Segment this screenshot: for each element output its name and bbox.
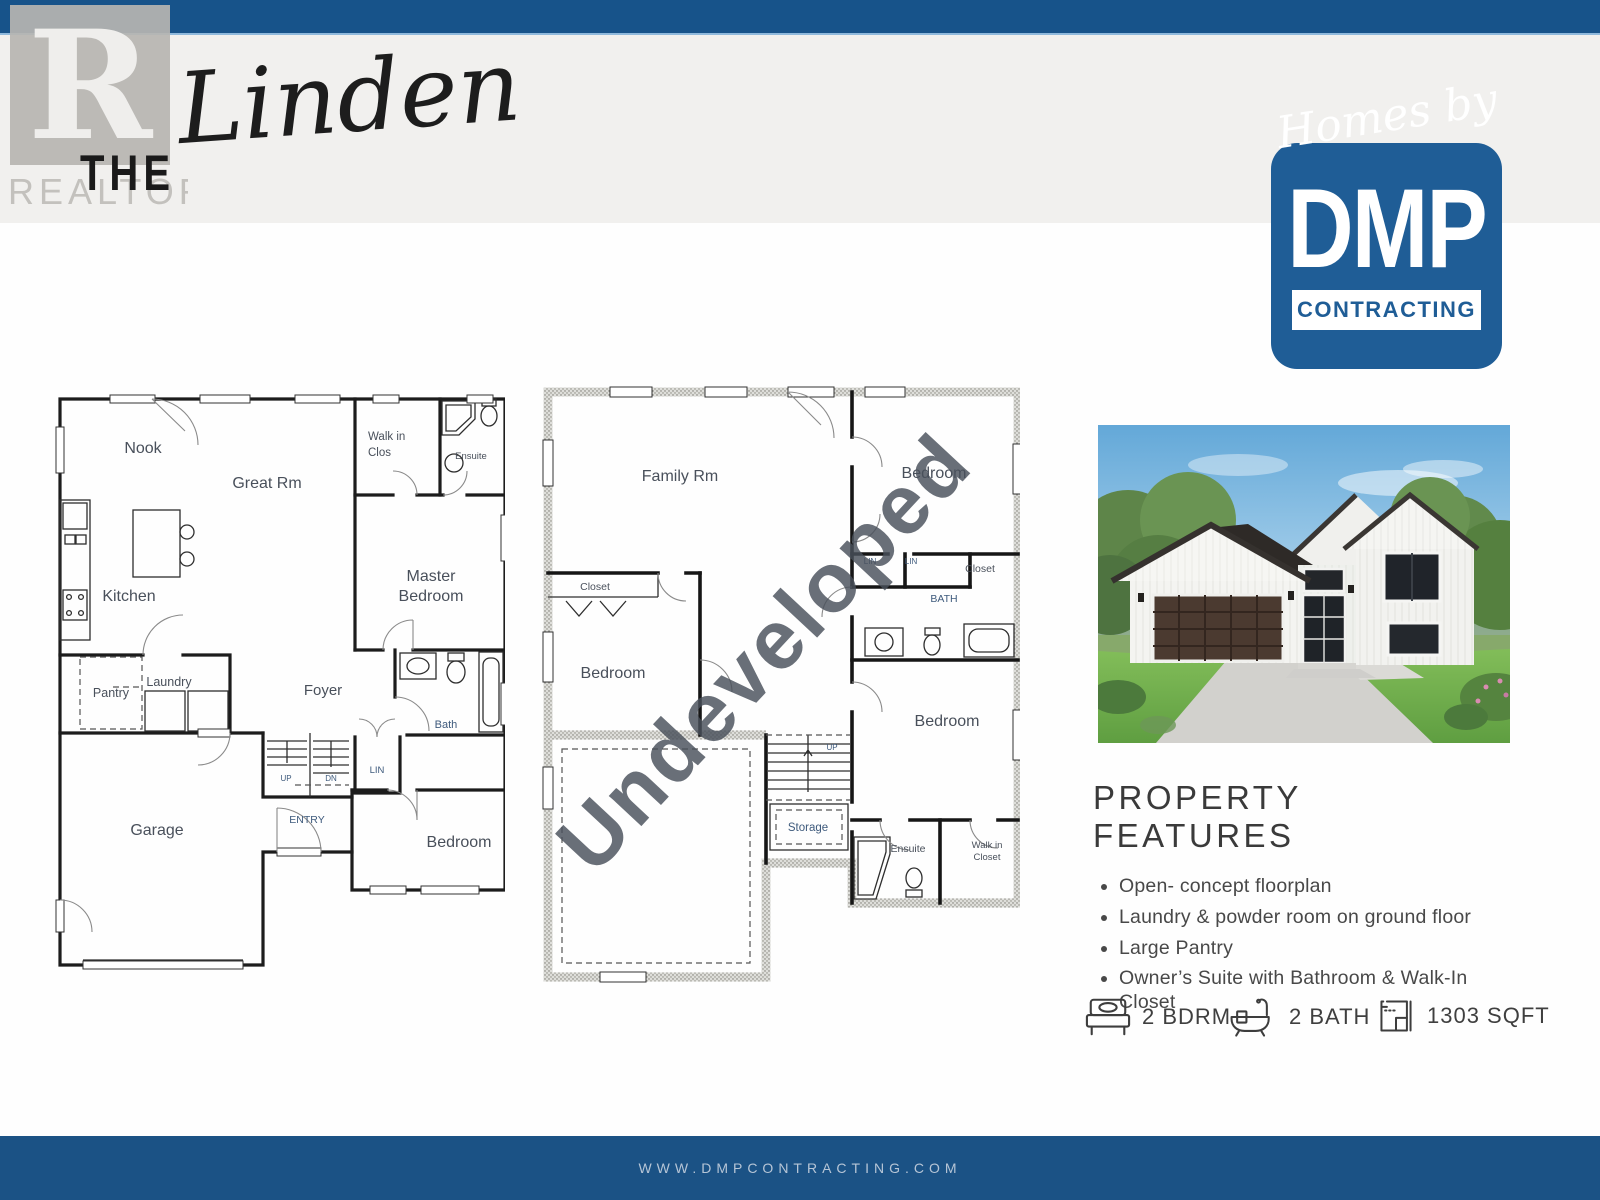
room-label: Walk in: [972, 840, 1003, 851]
stat-bedrooms-label: 2 BDRM: [1142, 1004, 1231, 1030]
features-title: PROPERTY FEATURES: [1093, 779, 1489, 855]
room-label: Great Rm: [232, 475, 301, 492]
floorplan-icon: [1376, 995, 1416, 1037]
room-label: Pantry: [93, 686, 130, 700]
stat-sqft-label: 1303 SQFT: [1427, 1003, 1550, 1029]
room-label: Garage: [130, 822, 183, 839]
room-label: Closet: [580, 581, 610, 593]
feature-item: Large Pantry: [1119, 937, 1489, 961]
features-list: Open- concept floorplan Laundry & powder…: [1093, 875, 1489, 1015]
footer-bar: WWW.DMPCONTRACTING.COM: [0, 1136, 1600, 1200]
room-label: Walk in: [368, 431, 405, 443]
room-label: Storage: [788, 822, 828, 834]
property-features-section: PROPERTY FEATURES Open- concept floorpla…: [1093, 779, 1489, 1022]
website-url: WWW.DMPCONTRACTING.COM: [638, 1160, 961, 1176]
room-label: BATH: [930, 593, 957, 605]
room-label: Nook: [124, 440, 162, 457]
bath-icon: [1226, 995, 1278, 1039]
room-label: Closet: [974, 852, 1001, 863]
room-label: Ensuite: [455, 451, 487, 462]
dmp-wordmark: DMP: [1271, 173, 1502, 285]
top-blue-strip: [0, 0, 1600, 35]
stat-bathrooms: 2 BATH: [1226, 995, 1370, 1039]
room-label: UP: [280, 774, 291, 783]
room-label: Bedroom: [581, 665, 646, 682]
contracting-banner: CONTRACTING: [1292, 290, 1481, 330]
stat-bathrooms-label: 2 BATH: [1289, 1004, 1370, 1030]
house-rendering-image: [1098, 425, 1510, 743]
room-label: LIN: [370, 765, 385, 776]
stat-sqft: 1303 SQFT: [1376, 995, 1550, 1037]
feature-item: Open- concept floorplan: [1119, 875, 1489, 899]
room-label: Clos: [368, 447, 391, 459]
room-label: Ensuite: [890, 843, 925, 855]
room-label: Closet: [965, 563, 995, 575]
room-label: ENTRY: [289, 814, 324, 826]
basement-floorplan: Family Rm Bedroom Closet LIN LIN Closet …: [540, 382, 1020, 997]
room-label: Laundry: [146, 675, 192, 689]
plan-title-name: Linden: [174, 28, 525, 169]
flyer-page: R REALTOR® THE Linden Homes by DMP CONTR…: [0, 0, 1600, 1200]
room-label: Foyer: [304, 682, 342, 699]
room-label: Bedroom: [399, 588, 464, 605]
bed-icon: [1085, 995, 1131, 1039]
room-label: Bedroom: [915, 713, 980, 730]
plan-title-the: THE: [80, 146, 175, 202]
feature-item: Laundry & powder room on ground floor: [1119, 906, 1489, 930]
dmp-logo: Homes by DMP CONTRACTING: [1271, 143, 1502, 369]
room-label: Kitchen: [102, 588, 155, 605]
contracting-label: CONTRACTING: [1297, 297, 1476, 323]
room-label: UP: [826, 743, 837, 752]
room-label: Bedroom: [427, 834, 492, 851]
main-floorplan: Nook Great Rm Walk in Clos Ensuite Kitch…: [55, 385, 505, 1015]
room-label: Family Rm: [642, 468, 718, 485]
stat-bedrooms: 2 BDRM: [1085, 995, 1231, 1039]
main-floor-dashed: [80, 657, 349, 785]
room-label: Bath: [435, 719, 458, 731]
room-label: DN: [325, 774, 337, 783]
room-label: Master: [407, 568, 457, 585]
